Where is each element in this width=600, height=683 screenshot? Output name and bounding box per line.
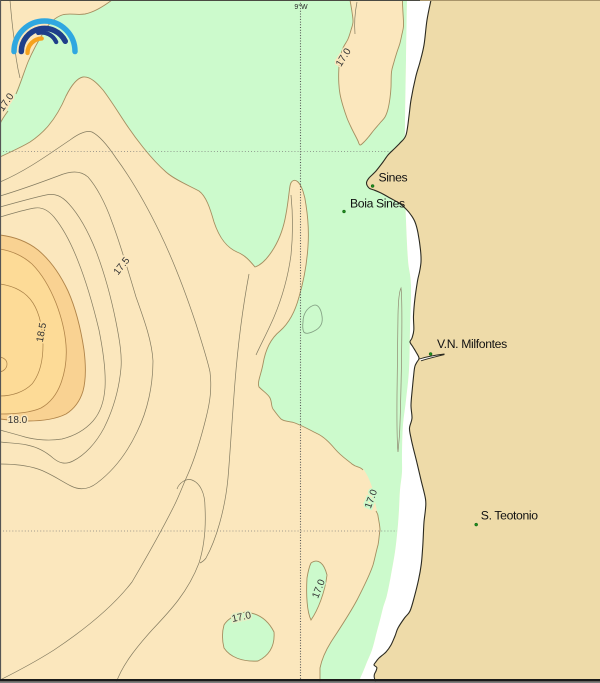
svg-text:V.N. Milfontes: V.N. Milfontes [437,337,507,351]
svg-text:18.0: 18.0 [8,415,28,426]
svg-text:Sines: Sines [379,171,408,185]
svg-text:Boia Sines: Boia Sines [350,197,405,211]
svg-text:9°W: 9°W [294,3,308,11]
svg-text:S. Teotonio: S. Teotonio [481,509,538,523]
